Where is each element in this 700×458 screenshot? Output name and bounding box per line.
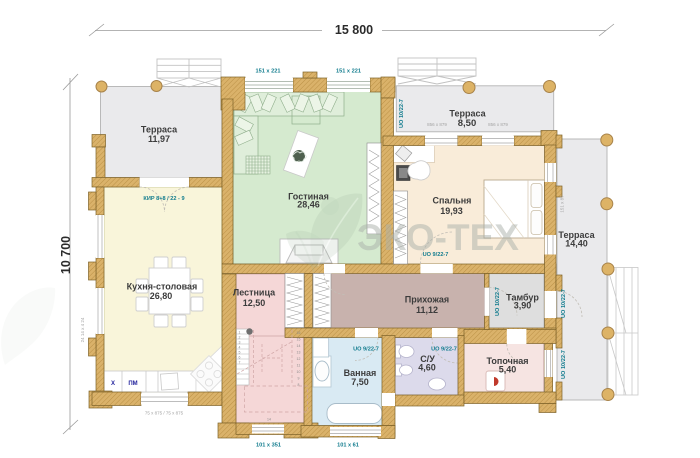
svg-text:Терраса: Терраса [141,125,178,135]
svg-text:101 x 61: 101 x 61 [337,443,359,449]
svg-text:14: 14 [267,418,271,422]
svg-text:Спальня: Спальня [433,196,472,206]
svg-text:75 x 875 / 75 x 875: 75 x 875 / 75 x 875 [145,411,184,416]
svg-text:11,12: 11,12 [416,305,438,315]
svg-text:12,50: 12,50 [243,298,266,308]
svg-text:11: 11 [297,364,301,368]
svg-text:4: 4 [239,346,241,350]
svg-text:12: 12 [297,357,301,361]
svg-text:4,60: 4,60 [418,363,436,373]
svg-text:2: 2 [239,336,241,340]
svg-text:856 x 879: 856 x 879 [427,122,447,127]
svg-text:14: 14 [297,344,301,348]
svg-text:26,80: 26,80 [150,291,173,301]
svg-text:15 800: 15 800 [335,23,373,37]
svg-text:19,93: 19,93 [440,206,463,216]
svg-text:UO 9/22-7: UO 9/22-7 [353,347,379,353]
svg-text:10: 10 [297,370,301,374]
svg-text:КИР 8+8 / 22 - 9: КИР 8+8 / 22 - 9 [143,196,184,202]
svg-text:9: 9 [298,377,300,381]
svg-text:Прихожая: Прихожая [405,295,449,305]
svg-text:856 x 879: 856 x 879 [488,122,508,127]
svg-text:UO 10/22-7: UO 10/22-7 [561,289,567,318]
svg-text:28,46: 28,46 [297,200,320,210]
svg-text:Терраса: Терраса [449,109,486,119]
svg-text:6: 6 [239,356,241,360]
svg-text:16: 16 [297,331,301,335]
svg-text:8,50: 8,50 [458,118,477,129]
svg-text:Х: Х [111,381,115,387]
svg-text:UO 10/22-7: UO 10/22-7 [561,350,567,379]
svg-text:Кухня-столовая: Кухня-столовая [127,282,198,292]
svg-text:101 x 351: 101 x 351 [256,443,281,449]
svg-text:3,90: 3,90 [514,301,532,311]
svg-text:7,50: 7,50 [351,377,369,387]
svg-text:8: 8 [298,383,300,387]
svg-text:UO 10/22-7: UO 10/22-7 [399,99,405,128]
svg-text:13: 13 [297,351,301,355]
svg-text:UO 10/22-7: UO 10/22-7 [495,287,501,316]
svg-text:Лестница: Лестница [233,288,276,298]
svg-text:15: 15 [297,338,301,342]
svg-text:1: 1 [239,331,241,335]
svg-text:5,40: 5,40 [499,365,517,375]
svg-text:5: 5 [239,351,241,355]
svg-text:151 x 221: 151 x 221 [336,69,361,75]
svg-text:10 700: 10 700 [59,236,73,274]
svg-text:11,97: 11,97 [148,134,170,144]
svg-text:151 x 87: 151 x 87 [560,195,565,213]
svg-text:ЭКО-ТЕХ: ЭКО-ТЕХ [357,217,519,258]
svg-text:14,40: 14,40 [565,239,588,249]
svg-text:24 14 x 4 24: 24 14 x 4 24 [80,317,85,342]
svg-text:ПМ: ПМ [128,381,137,387]
svg-text:3: 3 [239,341,241,345]
svg-text:151 x 221: 151 x 221 [256,69,281,75]
svg-text:UO 9/22-7: UO 9/22-7 [431,347,457,353]
svg-text:7: 7 [239,361,241,365]
